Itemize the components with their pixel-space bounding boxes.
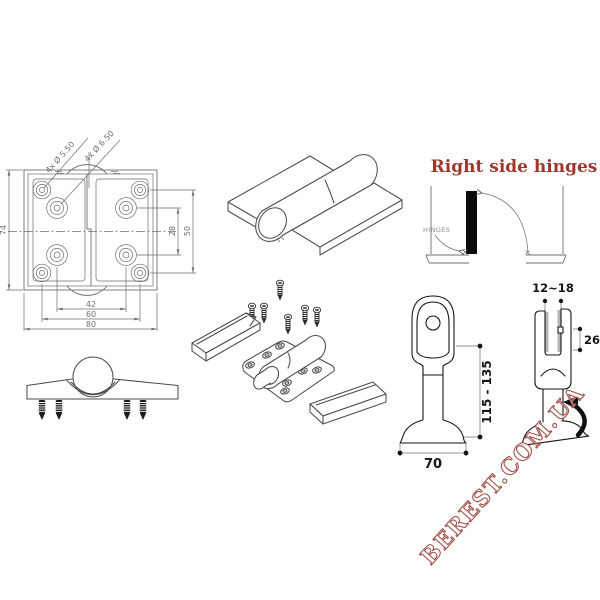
exploded-assembly-view bbox=[180, 273, 395, 458]
dim-plate-width: 80 bbox=[86, 320, 96, 329]
dim-plate-height: 74 bbox=[0, 225, 8, 235]
door-leaf-closed bbox=[466, 191, 477, 254]
watermark-text: BEREST.COM.UA bbox=[416, 381, 590, 570]
front-view-body bbox=[27, 357, 178, 399]
technical-drawing-sheet: 4x Ø 5.50 4x Ø 6.50 74 28 50 42 60 80 bbox=[0, 0, 600, 600]
glass-clamp-dimension-right: 26 bbox=[573, 327, 600, 352]
right-side-hinges-title: Right side hinges bbox=[431, 157, 598, 177]
cover-cap-top bbox=[192, 313, 260, 361]
watermark: BEREST.COM.UA bbox=[415, 395, 600, 600]
front-view-screws bbox=[39, 400, 146, 420]
hinge-isometric-sketch bbox=[222, 138, 404, 273]
hole-callouts: 4x Ø 5.50 4x Ø 6.50 bbox=[43, 128, 120, 204]
door-swing-arc bbox=[482, 193, 528, 253]
dim-glass-range: 12~18 bbox=[532, 281, 574, 295]
hinge-front-view bbox=[15, 338, 180, 433]
dim-hole-span-28: 28 bbox=[168, 226, 177, 236]
dim-hole-span-42: 42 bbox=[86, 300, 96, 309]
hinges-label: HINGES bbox=[423, 226, 450, 234]
dim-hole-span-50: 50 bbox=[183, 226, 192, 236]
dim-hole-span-60: 60 bbox=[86, 310, 96, 319]
cover-cap-bottom bbox=[310, 382, 386, 424]
dim-jaw-depth: 26 bbox=[584, 333, 600, 347]
callout-large-holes: 4x Ø 6.50 bbox=[82, 128, 116, 163]
hinges-leader-arrow bbox=[435, 235, 459, 251]
hinge-body-center bbox=[243, 335, 334, 401]
door-swing-diagram: Right side hinges HINGES bbox=[422, 155, 600, 290]
dimension-lines: 74 28 50 42 60 80 bbox=[0, 170, 196, 331]
